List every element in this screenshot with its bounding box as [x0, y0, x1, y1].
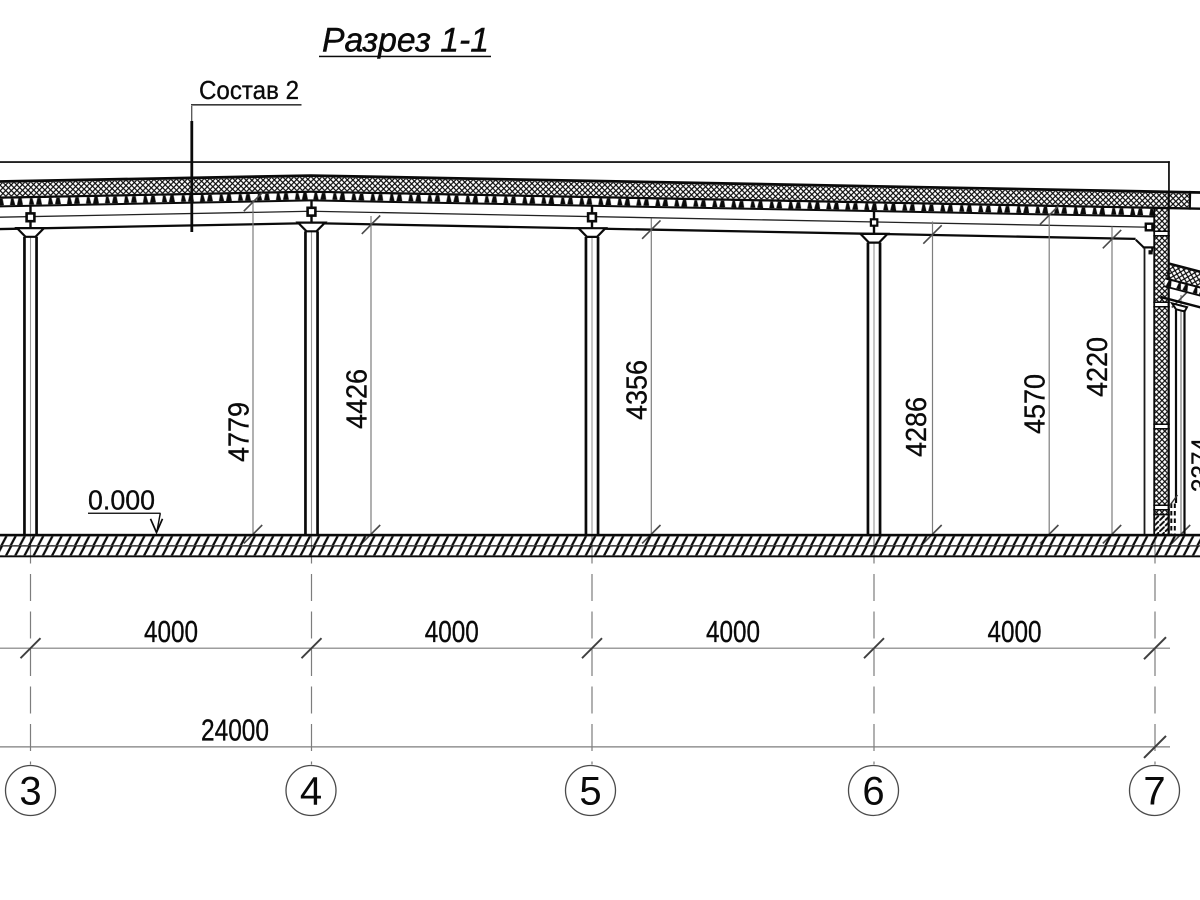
svg-text:3: 3	[19, 770, 41, 814]
svg-text:3374: 3374	[1186, 438, 1200, 492]
svg-text:4: 4	[300, 770, 322, 814]
svg-text:4356: 4356	[622, 360, 654, 420]
svg-text:5: 5	[579, 770, 601, 814]
svg-text:4000: 4000	[425, 614, 479, 649]
svg-text:Состав 2: Состав 2	[199, 75, 299, 105]
svg-text:7: 7	[1143, 770, 1165, 814]
svg-text:4570: 4570	[1020, 374, 1052, 434]
svg-text:6: 6	[862, 770, 884, 814]
svg-text:4000: 4000	[706, 614, 760, 649]
svg-text:0.000: 0.000	[88, 485, 155, 516]
svg-text:4426: 4426	[342, 369, 374, 429]
svg-text:4000: 4000	[988, 614, 1042, 649]
svg-text:24000: 24000	[201, 713, 269, 748]
svg-text:4220: 4220	[1082, 337, 1114, 397]
svg-text:4000: 4000	[144, 614, 198, 649]
svg-text:Разрез 1-1: Разрез 1-1	[322, 21, 489, 59]
svg-text:4779: 4779	[224, 402, 256, 462]
svg-text:4286: 4286	[901, 397, 933, 457]
